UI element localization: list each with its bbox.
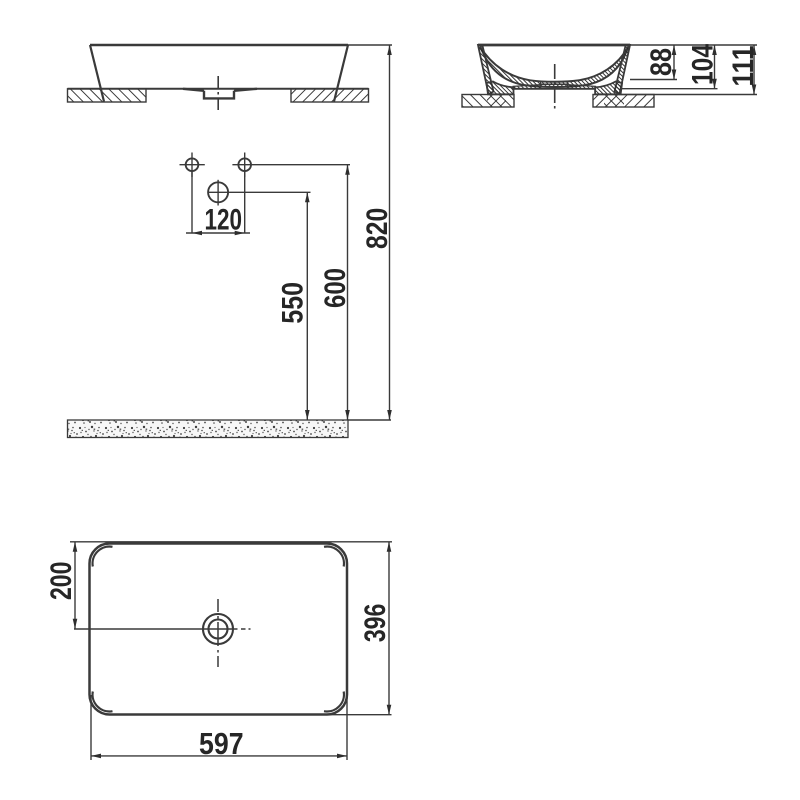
- svg-text:820: 820: [361, 208, 394, 249]
- svg-text:120: 120: [205, 204, 243, 237]
- svg-text:200: 200: [45, 562, 78, 601]
- svg-text:597: 597: [199, 726, 244, 761]
- svg-text:550: 550: [277, 282, 310, 324]
- svg-text:600: 600: [319, 268, 352, 308]
- svg-text:88: 88: [645, 48, 678, 76]
- svg-text:396: 396: [359, 604, 392, 643]
- svg-text:104: 104: [686, 44, 719, 85]
- svg-text:111: 111: [727, 46, 760, 87]
